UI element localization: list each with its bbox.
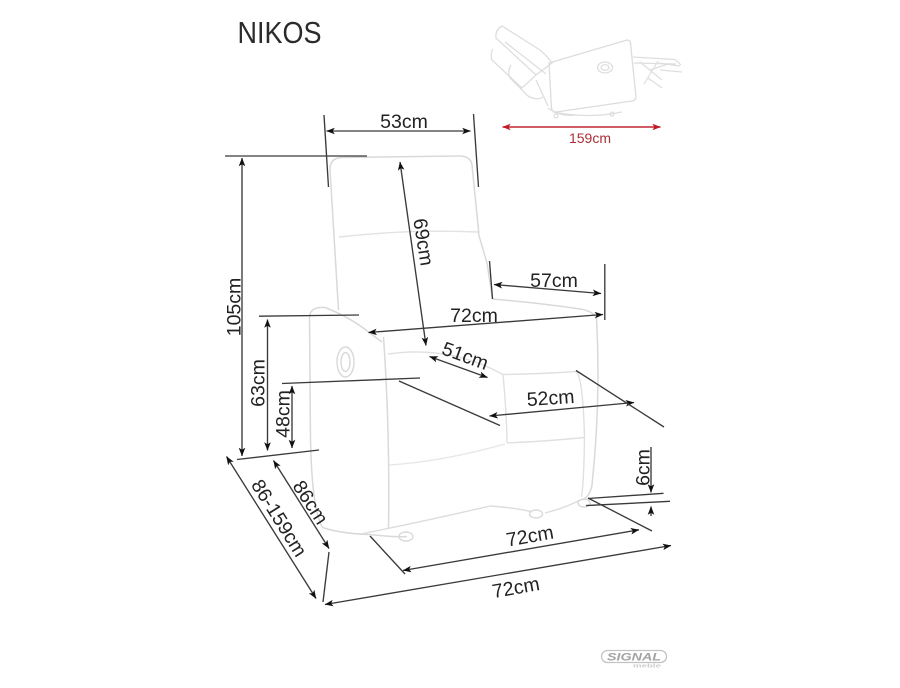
svg-text:6cm: 6cm	[633, 449, 655, 486]
svg-text:52cm: 52cm	[526, 386, 575, 411]
svg-text:105cm: 105cm	[224, 278, 246, 337]
svg-text:48cm: 48cm	[273, 390, 295, 438]
svg-text:57cm: 57cm	[530, 270, 578, 292]
svg-text:86cm: 86cm	[288, 477, 332, 529]
svg-text:159cm: 159cm	[569, 130, 611, 146]
svg-text:72cm: 72cm	[491, 573, 542, 603]
svg-text:SIGNAL: SIGNAL	[607, 652, 661, 664]
svg-text:69cm: 69cm	[408, 217, 437, 268]
svg-text:meble: meble	[633, 664, 661, 670]
svg-text:72cm: 72cm	[450, 305, 498, 327]
svg-text:63cm: 63cm	[248, 359, 270, 407]
svg-text:72cm: 72cm	[505, 522, 556, 552]
svg-text:53cm: 53cm	[380, 111, 428, 133]
svg-text:NIKOS: NIKOS	[238, 15, 322, 50]
